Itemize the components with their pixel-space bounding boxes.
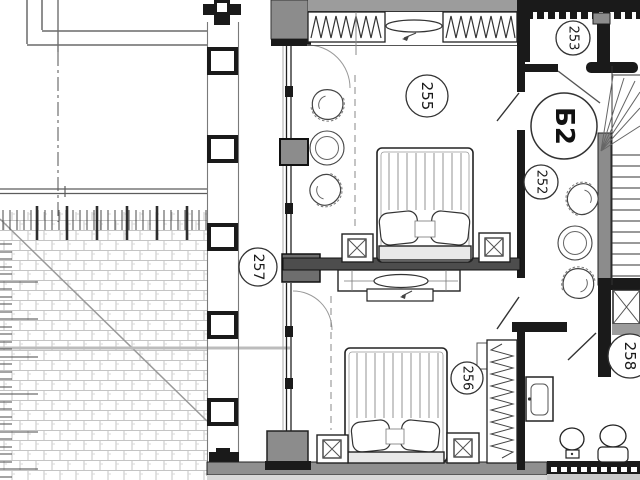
elevator-sill-gray bbox=[612, 324, 640, 335]
window-glazing-256 bbox=[287, 283, 292, 431]
floor-plan-page: 255 253 Б2 252 257 256 258 bbox=[0, 0, 640, 480]
bathroom-fixtures bbox=[526, 377, 628, 462]
room-label-258: 258 bbox=[608, 334, 640, 378]
corridor-252-seating bbox=[557, 177, 603, 303]
room-number-252: 252 bbox=[534, 170, 549, 195]
tub-chair bbox=[561, 177, 604, 219]
lamp-icon bbox=[485, 238, 503, 256]
room-label-256: 256 bbox=[451, 362, 483, 394]
bottom-gray-band bbox=[207, 462, 547, 475]
room-label-255: 255 bbox=[406, 75, 448, 117]
tub-chair bbox=[305, 169, 348, 211]
room-number-255: 255 bbox=[418, 82, 436, 111]
unit-number: Б2 bbox=[549, 107, 579, 145]
bottom-wall-teeth bbox=[551, 467, 637, 472]
bidet bbox=[598, 425, 628, 462]
unit-label-b2: Б2 bbox=[531, 93, 597, 159]
pillow bbox=[351, 419, 392, 453]
tub-chair bbox=[306, 84, 349, 126]
bottom-light-band bbox=[207, 475, 547, 480]
lamp-icon bbox=[348, 239, 366, 257]
roof-hatch-area bbox=[0, 206, 290, 480]
room-label-253: 253 bbox=[556, 21, 590, 55]
wall-ne-corner bbox=[517, 0, 530, 62]
wall-256-east bbox=[517, 332, 525, 470]
room-number-253: 253 bbox=[566, 26, 581, 51]
column-square bbox=[209, 400, 236, 424]
wall-255-east-lower bbox=[517, 130, 525, 278]
sheet-fold bbox=[386, 429, 404, 444]
top-hatched-wall bbox=[518, 0, 640, 12]
column-square bbox=[209, 137, 236, 161]
column-square bbox=[209, 313, 236, 337]
wall-corridor-east-gray bbox=[598, 133, 611, 285]
wall-sw-base bbox=[265, 461, 311, 470]
floor-plan-drawing: 255 253 Б2 252 257 256 258 bbox=[0, 0, 640, 480]
balcony-door-swing-256 bbox=[293, 291, 332, 330]
nightstand-left-255 bbox=[342, 234, 373, 262]
room-number-258: 258 bbox=[621, 342, 639, 371]
sash-direction-arrow bbox=[404, 33, 416, 38]
west-window-wall bbox=[265, 0, 350, 470]
room-256-furniture bbox=[317, 270, 517, 463]
nightstand-right-256 bbox=[447, 433, 479, 463]
sheet-fold bbox=[415, 221, 435, 237]
wall-253-right bbox=[597, 24, 610, 66]
north-gray-strip bbox=[308, 0, 518, 11]
elevator-shaft bbox=[612, 290, 640, 335]
wall-sw-block bbox=[267, 431, 308, 463]
wall-elevator-top bbox=[598, 278, 640, 290]
faucet-dot bbox=[528, 397, 531, 400]
dresser-tv-256 bbox=[338, 270, 460, 301]
terrace-roof bbox=[0, 0, 207, 222]
top-wall-teeth bbox=[526, 12, 640, 19]
wall-corner-base bbox=[271, 39, 311, 46]
room-number-256: 256 bbox=[460, 366, 475, 391]
double-bed-256 bbox=[345, 348, 447, 463]
wardrobe-256 bbox=[487, 340, 517, 463]
wall-corner-block bbox=[271, 0, 308, 39]
lamp-icon bbox=[323, 440, 341, 458]
window-pier bbox=[280, 139, 308, 165]
column-square bbox=[209, 49, 236, 73]
headboard bbox=[348, 452, 444, 463]
stair-treads bbox=[612, 155, 640, 276]
room-number-257: 257 bbox=[250, 254, 266, 281]
room-label-252: 252 bbox=[524, 165, 558, 199]
terrace-parapet-lines bbox=[27, 0, 207, 45]
column-square bbox=[209, 225, 236, 249]
door-leaf-258 bbox=[568, 333, 596, 360]
headboard bbox=[379, 246, 471, 260]
sink-vanity bbox=[526, 377, 553, 421]
stair-winder-fan bbox=[601, 76, 640, 151]
north-window-band bbox=[308, 0, 518, 55]
balcony-door-swing-255 bbox=[307, 45, 350, 88]
seating-group-255 bbox=[305, 84, 349, 211]
pillow bbox=[378, 210, 419, 246]
door-leaf-255 bbox=[497, 93, 519, 121]
tub-chair bbox=[557, 261, 600, 303]
nightstand-right-255 bbox=[479, 233, 510, 262]
sliding-sash-lens bbox=[386, 20, 442, 32]
column-cross-top bbox=[203, 0, 241, 25]
top-wall-pier bbox=[593, 13, 610, 24]
wall-255-east-upper bbox=[517, 62, 525, 92]
roof-edge-double-line bbox=[0, 186, 207, 197]
pillow bbox=[429, 210, 470, 246]
nightstand-left-256 bbox=[317, 435, 348, 463]
double-bed-255 bbox=[377, 148, 473, 262]
tv-lens bbox=[374, 275, 428, 288]
bottom-light-band-right bbox=[547, 474, 640, 480]
wall-252-bottom bbox=[512, 322, 567, 332]
toilet bbox=[560, 428, 584, 458]
wall-253-bottom bbox=[522, 64, 558, 72]
room-label-257: 257 bbox=[239, 248, 277, 286]
pillow bbox=[400, 419, 441, 453]
lamp-icon bbox=[454, 439, 472, 457]
colonnade bbox=[203, 0, 241, 470]
roof-hatch-fill bbox=[0, 212, 207, 480]
